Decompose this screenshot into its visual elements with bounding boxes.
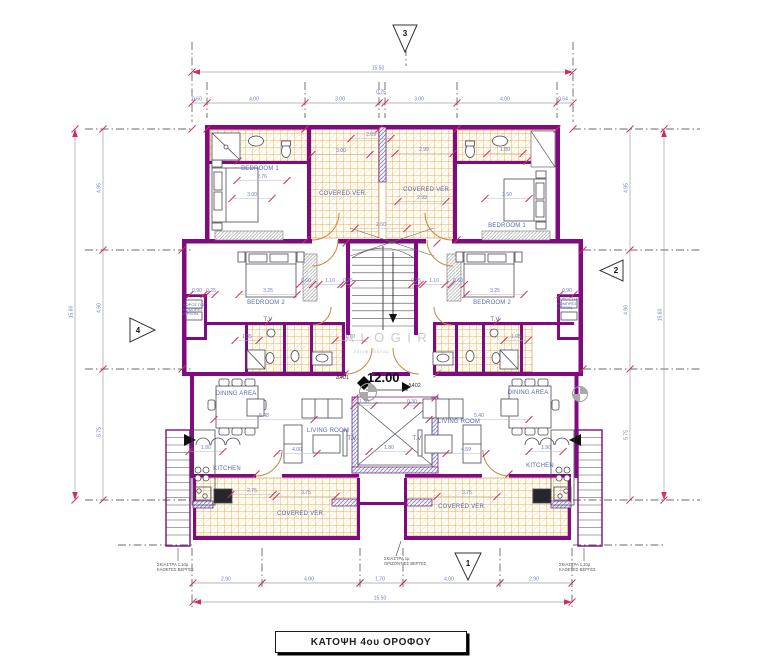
rect-shape (536, 222, 546, 229)
rect-shape (307, 125, 311, 242)
toilet (291, 351, 299, 362)
rect-shape (212, 160, 222, 167)
furniture-layer (186, 133, 577, 505)
exterior-stairs-left (166, 430, 190, 546)
dim-arrow (661, 129, 667, 137)
rect-shape (435, 322, 574, 325)
rect-shape (212, 223, 222, 230)
sink (312, 352, 332, 365)
rect-shape (343, 430, 347, 456)
circle-shape (556, 467, 562, 473)
dim-label: 3.75 (462, 490, 472, 496)
rect-shape (357, 502, 407, 505)
dim-arrow (72, 492, 78, 500)
dim-label: 1.80 (500, 147, 510, 153)
dim-arrow (193, 599, 201, 605)
path-shape (580, 387, 588, 395)
dim-label: 1.05 (511, 334, 521, 340)
dim-label: 3.00 (414, 97, 424, 103)
rect-shape (282, 474, 359, 478)
dim-label: 2.09 (366, 132, 376, 138)
dim-label: 4.00 (444, 577, 454, 583)
dim-label: 0.64 (558, 97, 568, 103)
rect-shape (245, 428, 255, 435)
rect-shape (579, 239, 584, 376)
dim-label: 0.90 (562, 288, 572, 294)
sink (249, 136, 264, 146)
section-marker (130, 318, 155, 342)
rect-shape (453, 125, 457, 242)
rect-shape (551, 501, 571, 508)
floor-plan-drawing: 15.500.604.003.000.253.004.000.642.904.0… (0, 0, 768, 658)
annotation-layer: 15.500.604.003.000.253.004.000.642.904.0… (69, 25, 701, 610)
rect-shape (357, 478, 360, 540)
sofa (284, 425, 302, 463)
dim-label: 0.25 (343, 278, 353, 284)
dim-label: 3.00 (247, 192, 257, 198)
dim-label: 4.95 (624, 183, 630, 193)
toilet (466, 141, 475, 158)
dim-label: 0.60 (453, 278, 463, 284)
dim-label: 4.00 (304, 577, 314, 583)
dim-label: 4.90 (624, 305, 630, 315)
rect-shape (270, 254, 288, 262)
dim-label: 3.00 (335, 97, 345, 103)
survey-target-icon (573, 387, 588, 402)
circle-shape (558, 494, 562, 498)
circle-shape (195, 475, 201, 481)
rect-shape (214, 172, 222, 190)
sink (490, 329, 498, 337)
rect-shape (232, 428, 242, 435)
shower (500, 350, 518, 369)
dim-arrow (192, 69, 200, 75)
toilet (282, 141, 291, 158)
corner-closet (531, 131, 555, 167)
rect-shape (455, 325, 458, 372)
toilet (466, 351, 474, 362)
circle-shape (203, 494, 207, 498)
dim-label: 1.70 (345, 334, 355, 340)
rect-shape (405, 536, 571, 540)
rect-shape (556, 125, 561, 243)
dim-label: 1.90 (541, 445, 551, 451)
rect-shape (193, 501, 213, 508)
bed-double (456, 252, 522, 297)
dim-label: 3.00 (336, 148, 346, 154)
dim-label: 15.50 (372, 66, 385, 72)
dim-label: 3.25 (263, 288, 273, 294)
unit-number-left: Δ401 (336, 375, 349, 381)
circle-shape (267, 329, 275, 337)
rect-shape (512, 379, 522, 386)
dim-label: 0.25 (206, 288, 216, 294)
dim-arrow (565, 69, 573, 75)
rect-shape (557, 294, 560, 340)
dim-arrow (661, 492, 667, 500)
rect-shape (313, 435, 340, 453)
dim-label: 1.80 (201, 445, 211, 451)
rect-shape (352, 397, 358, 473)
armchair (501, 399, 518, 416)
circle-shape (203, 475, 209, 481)
dim-label: 4.59 (461, 447, 471, 453)
rect-shape (249, 254, 267, 262)
door-arc (256, 450, 282, 476)
dim-tick (434, 240, 441, 247)
rect-shape (552, 400, 559, 410)
rect-shape (423, 399, 463, 418)
rect-shape (525, 379, 535, 386)
sink (267, 329, 275, 337)
rect-shape (414, 243, 418, 335)
dim-label: 0.60 (192, 97, 202, 103)
ellipse-shape (316, 354, 328, 362)
rect-shape (238, 252, 245, 262)
dim-label: 0.90 (192, 288, 202, 294)
shower (247, 350, 265, 369)
rect-shape (219, 428, 229, 435)
veranda-floor (386, 128, 453, 238)
leader-line (396, 541, 401, 556)
rect-shape (182, 372, 346, 376)
section-marker (600, 260, 623, 281)
rect-shape (488, 254, 506, 262)
dim-label: 1.80 (384, 445, 394, 451)
veranda-floor (311, 128, 379, 238)
rect-shape (436, 372, 583, 376)
rect-shape (379, 127, 386, 182)
tv-unit (418, 430, 422, 456)
dim-label: 15.50 (374, 596, 387, 602)
fridge (533, 489, 551, 503)
circle-shape (224, 145, 228, 149)
rect-shape (183, 337, 207, 340)
circle-shape (556, 475, 562, 481)
dim-label: 5.40 (474, 413, 484, 419)
rect-shape (342, 322, 345, 375)
dim-label: 4.95 (97, 183, 103, 193)
veranda-floor (194, 478, 357, 536)
sofa (423, 399, 463, 418)
dim-label: 3.50 (502, 192, 512, 198)
dim-arrow (72, 129, 78, 137)
sink (433, 352, 453, 365)
dim-label: 5.48 (259, 413, 269, 419)
section-marker-number: 2 (614, 266, 619, 275)
coffee-table (425, 435, 452, 453)
rect-shape (433, 322, 436, 375)
circle-shape (564, 467, 570, 473)
dim-label: 15.60 (658, 309, 664, 322)
rect-shape (346, 243, 350, 335)
section-marker-number: 4 (136, 326, 141, 335)
section-marker-number: 3 (403, 29, 408, 38)
title-block: ΚΑΤΟΨΗ 4ου ΟΡΟΦΟΥ (275, 631, 467, 653)
dim-label: 1.05 (242, 334, 252, 340)
dim-label: 4.00 (292, 447, 302, 453)
rect-shape (407, 499, 432, 506)
dim-label: 2.75 (247, 488, 257, 494)
drawing-title: ΚΑΤΟΨΗ 4ου ΟΡΟΦΟΥ (311, 637, 431, 648)
rect-shape (214, 192, 222, 210)
rect-shape (186, 300, 202, 308)
toilet (266, 353, 274, 364)
dim-label: 5.75 (624, 430, 630, 440)
rect-shape (561, 312, 577, 320)
rect-shape (204, 294, 207, 340)
closet (215, 231, 283, 240)
rect-shape (219, 379, 229, 386)
rect-shape (418, 430, 422, 456)
level-value: 12.00 (367, 370, 400, 385)
circle-shape (490, 329, 498, 337)
toilet (492, 353, 500, 364)
rect-shape (536, 171, 546, 178)
rect-shape (283, 325, 286, 372)
path-shape (166, 438, 190, 536)
ellipse-shape (437, 354, 449, 362)
dim-label: 0.30 (407, 399, 417, 405)
rect-shape (425, 435, 452, 453)
rect-shape (186, 312, 202, 320)
section-marker-number: 1 (466, 559, 471, 568)
veranda-floor (405, 478, 568, 536)
dim-label: 3.25 (490, 288, 500, 294)
dim-label: 0.25 (411, 278, 421, 284)
dim-arrow (564, 599, 572, 605)
rect-shape (561, 300, 577, 308)
rect-shape (404, 478, 407, 540)
shower (212, 133, 240, 160)
rect-shape (520, 325, 523, 372)
rect-shape (536, 201, 544, 217)
ellipse-shape (492, 353, 500, 364)
rect-shape (166, 430, 190, 546)
ellipse-shape (249, 136, 264, 146)
rect-shape (338, 239, 426, 244)
dim-label: 0.60 (301, 278, 311, 284)
rect-shape (536, 183, 544, 199)
dim-label: 4.00 (500, 97, 510, 103)
dim-label: 0.25 (376, 90, 386, 96)
tv-unit (343, 430, 347, 456)
rect-shape (557, 337, 581, 340)
dim-label: 2.99 (417, 195, 427, 201)
exterior-stairs-right (578, 430, 602, 546)
unit-number-right: Δ402 (408, 383, 421, 389)
rect-shape (282, 141, 291, 146)
ellipse-shape (291, 351, 299, 362)
dim-label: 1.70 (375, 577, 385, 583)
dim-label: 2.90 (529, 577, 539, 583)
rect-shape (208, 400, 215, 410)
rect-shape (482, 325, 485, 372)
circle-shape (203, 467, 209, 473)
dim-label: 15.60 (69, 306, 75, 319)
rect-shape (297, 252, 304, 262)
closet (482, 231, 550, 240)
rect-shape (501, 399, 518, 416)
coffee-table (313, 435, 340, 453)
circle-shape (564, 489, 568, 493)
rect-shape (232, 379, 242, 386)
dim-label: 2.76 (257, 174, 267, 180)
sink (493, 136, 508, 146)
rect-shape (205, 125, 210, 243)
dim-label: 2.60 (376, 222, 386, 228)
sofa (463, 425, 481, 463)
circle-shape (195, 467, 201, 473)
circle-shape (197, 489, 201, 493)
rect-shape (538, 379, 548, 386)
ellipse-shape (266, 353, 274, 364)
dim-label: 5.75 (97, 427, 103, 437)
rect-shape (405, 474, 482, 478)
path-shape (525, 438, 569, 445)
path-shape (573, 394, 581, 402)
rect-shape (352, 467, 438, 473)
bed-double (504, 171, 546, 229)
dim-label: 2.99 (419, 147, 429, 153)
rect-shape (332, 499, 357, 506)
rect-shape (245, 379, 255, 386)
dim-label: 3.75 (301, 490, 311, 496)
path-shape (578, 438, 602, 536)
sofa (302, 399, 342, 418)
rect-shape (456, 252, 463, 262)
rect-shape (538, 428, 548, 435)
survey-target-icon (360, 384, 377, 401)
ellipse-shape (466, 351, 474, 362)
dim-label: 2.90 (221, 577, 231, 583)
path-shape (196, 438, 240, 445)
dim-label: 1.30 (359, 399, 369, 405)
rect-shape (525, 428, 535, 435)
rect-shape (578, 430, 602, 546)
ellipse-shape (282, 145, 291, 158)
circle-shape (564, 475, 570, 481)
rect-shape (467, 254, 485, 262)
ellipse-shape (466, 145, 475, 158)
rect-shape (512, 428, 522, 435)
floor-plan-page: KALOGIROU κατοψ. διανομ. (0, 0, 768, 658)
rect-shape (193, 536, 359, 540)
rect-shape (515, 252, 522, 262)
rect-shape (302, 399, 342, 418)
dim-label: 4.00 (249, 97, 259, 103)
dim-label: 4.90 (97, 303, 103, 313)
ellipse-shape (493, 136, 508, 146)
rect-shape (466, 141, 475, 146)
door-arc (483, 450, 509, 476)
dim-label: 1.10 (429, 278, 439, 284)
dim-label: 1.10 (325, 278, 335, 284)
